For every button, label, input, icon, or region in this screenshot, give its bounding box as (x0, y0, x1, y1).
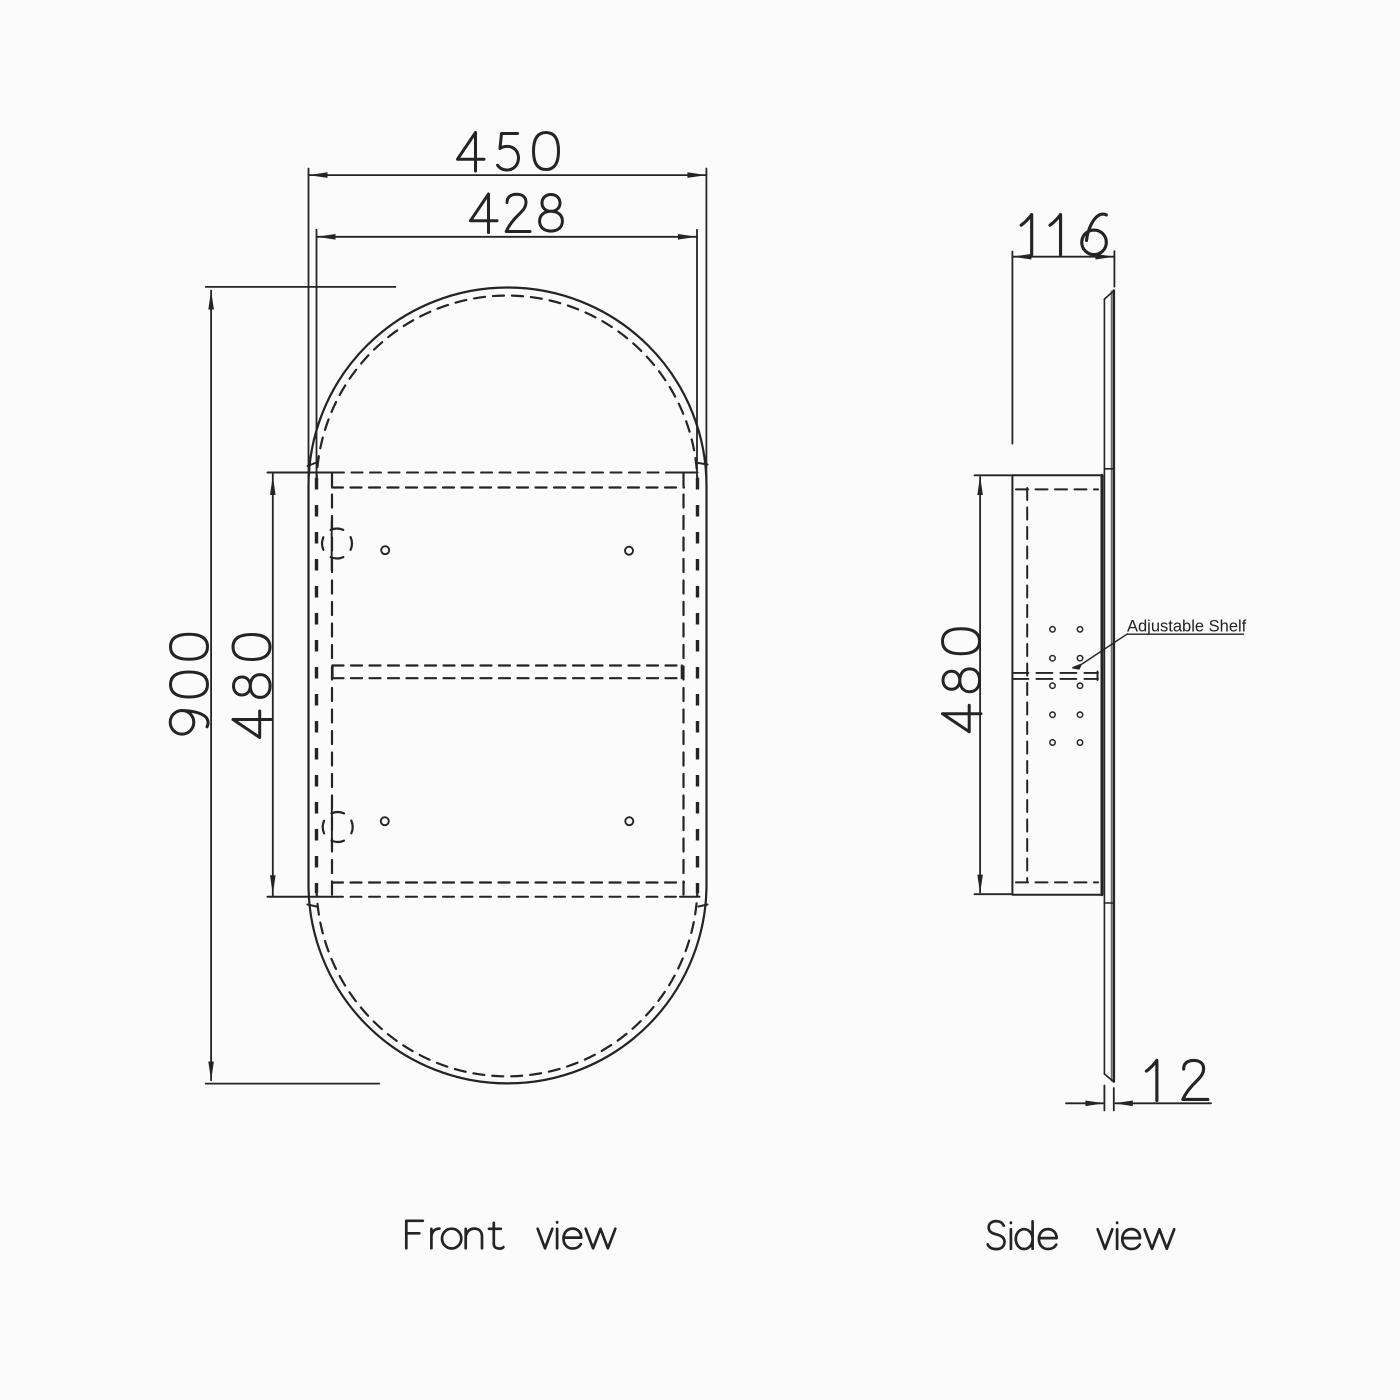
svg-text:Adjustable Shelf: Adjustable Shelf (1127, 618, 1247, 636)
